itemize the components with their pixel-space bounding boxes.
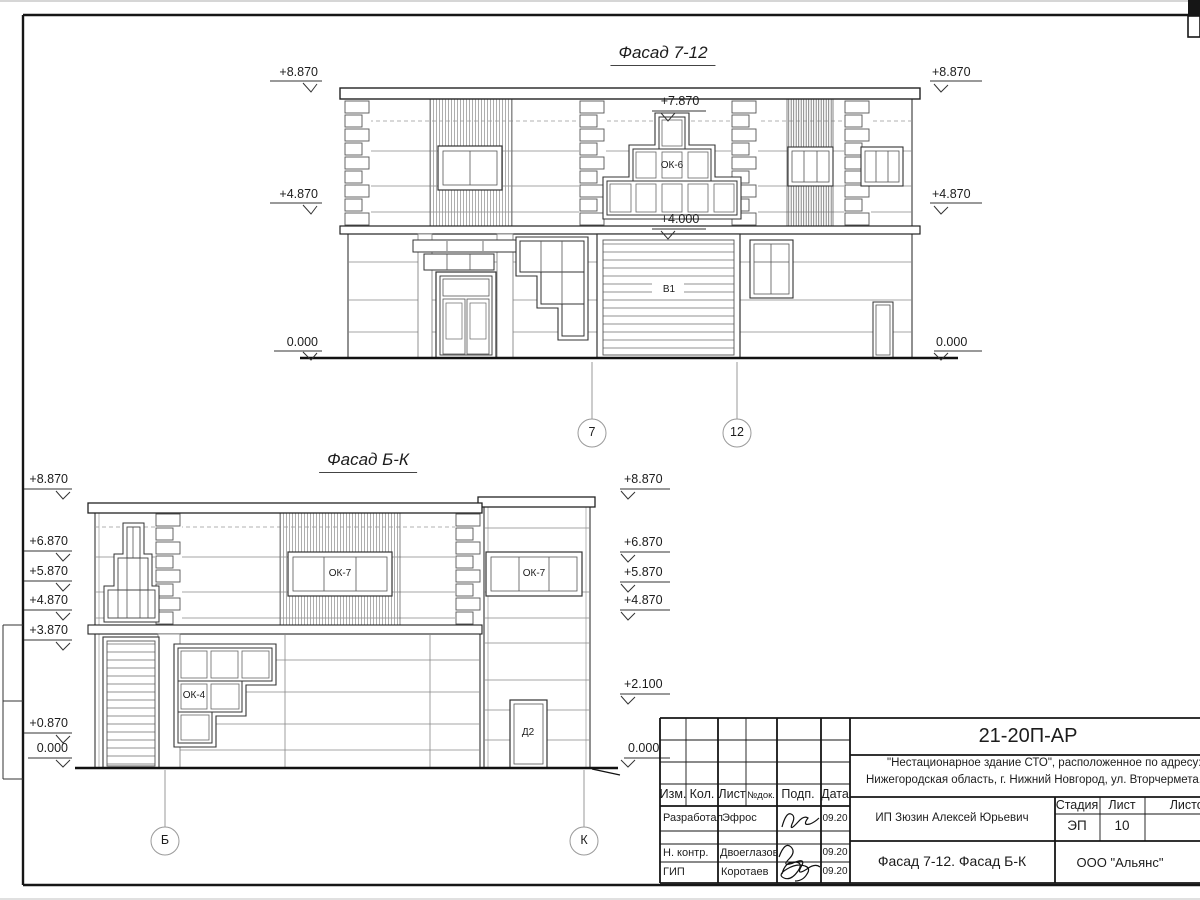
signature-scribbles (779, 814, 820, 881)
gate-tower (103, 637, 159, 768)
drawing-sheet: { "drawing": { "top_facade": { "title": … (0, 0, 1200, 900)
elevation-mark: +5.870 (29, 565, 68, 579)
staff-name: Эфрос (722, 812, 757, 824)
window-label-ok4: ОК-4 (183, 690, 206, 701)
corner-stamp-box (1188, 16, 1200, 37)
entrance-door (436, 272, 496, 358)
col-header-list: Лист (718, 788, 745, 802)
elevation-mark: +5.870 (624, 566, 663, 580)
sheet-title: Фасад 7-12. Фасад Б-К (878, 854, 1026, 869)
axis-label-12: 12 (730, 426, 744, 440)
axis-label-k: К (580, 834, 587, 848)
window-lower-right (750, 240, 793, 298)
staff-name: Коротаев (721, 866, 769, 878)
elevation-mark: +3.870 (29, 624, 68, 638)
organization-name: ООО "Альянс" (1077, 856, 1164, 870)
parapet (340, 88, 920, 99)
left-section-coping (88, 503, 482, 513)
screen-corner-artifact (1188, 0, 1200, 15)
col-header-kol: Кол. (690, 788, 715, 802)
project-description-line1: "Нестационарное здание СТО", расположенн… (887, 757, 1200, 770)
doc-number: 21-20П-АР (979, 725, 1078, 747)
right-section-coping (478, 497, 595, 507)
signature-gip (781, 862, 808, 881)
col-header-data: Дата (821, 788, 849, 802)
elevation-mark: +6.870 (29, 535, 68, 549)
elevation-mark: 0.000 (936, 336, 967, 350)
elevation-mark: +4.870 (932, 188, 971, 202)
elevation-mark: 0.000 (628, 742, 659, 756)
elevation-mark: +8.870 (932, 66, 971, 80)
staff-role: Разработал (663, 812, 723, 824)
stage-header: Стадия (1056, 799, 1099, 813)
axis-bubbles-top (578, 362, 751, 447)
col-header-podp: Подп. (781, 788, 814, 802)
axis-label-b: Б (161, 834, 169, 848)
staff-date: 09.20 (822, 813, 847, 824)
top-facade-drawing (300, 88, 958, 358)
elevation-mark: 0.000 (37, 742, 68, 756)
window-label-ok6: ОК-6 (661, 160, 684, 171)
staff-date: 09.20 (822, 866, 847, 877)
window-upper-right (861, 147, 903, 186)
floor-band-bottom (88, 625, 482, 634)
window-label-ok7-left: ОК-7 (329, 568, 352, 579)
bottom-facade-drawing (75, 497, 620, 775)
col-header-izm: Изм. (660, 788, 687, 802)
axis-label-7: 7 (589, 426, 596, 440)
door-lower-right (873, 302, 893, 358)
signature-developer (782, 814, 819, 828)
elevation-mark: +6.870 (624, 536, 663, 550)
entrance-transom (424, 254, 494, 270)
elevation-mark: +8.870 (279, 66, 318, 80)
staff-role: Н. контр. (663, 847, 708, 859)
entrance-canopy (413, 240, 520, 252)
window-label-ok7-right: ОК-7 (523, 568, 546, 579)
stage-value: ЭП (1067, 819, 1086, 834)
staff-role: ГИП (663, 866, 685, 878)
window-upper-mid-right (788, 147, 833, 186)
floor-band (340, 226, 920, 234)
bottom-facade-title: Фасад Б-К (319, 451, 417, 473)
axis-bubbles-bottom (151, 770, 598, 855)
staff-name: Двоеглазов (720, 847, 778, 859)
pilaster-left (418, 234, 432, 358)
sheets-header: Листов (1170, 799, 1200, 813)
elevation-mark: +4.870 (29, 594, 68, 608)
elevation-mark: +4.000 (661, 213, 700, 227)
elevation-mark: +0.870 (29, 717, 68, 731)
gate-b1 (597, 234, 740, 358)
elevation-mark: +4.870 (279, 188, 318, 202)
window-upper-left (438, 146, 502, 190)
pilaster-mid (497, 234, 513, 358)
elevation-mark: 0.000 (287, 336, 318, 350)
client-name: ИП Зюзин Алексей Юрьевич (875, 812, 1028, 825)
col-header-ndok: №док. (747, 791, 775, 801)
project-description-line2: Нижегородская область, г. Нижний Новгоро… (866, 774, 1200, 787)
elevation-mark: +8.870 (624, 473, 663, 487)
door-label-d2: Д2 (522, 727, 534, 738)
sheet-header: Лист (1108, 799, 1135, 813)
elevation-mark: +4.870 (624, 594, 663, 608)
left-margin-boxes (3, 625, 23, 779)
elevation-mark: +7.870 (661, 95, 700, 109)
top-facade-title: Фасад 7-12 (610, 44, 715, 66)
elevation-mark: +2.100 (624, 678, 663, 692)
elevation-mark: +8.870 (29, 473, 68, 487)
sheet-number: 10 (1114, 819, 1129, 834)
gate-label-b1: В1 (663, 284, 675, 295)
staff-date: 09.20 (822, 847, 847, 858)
